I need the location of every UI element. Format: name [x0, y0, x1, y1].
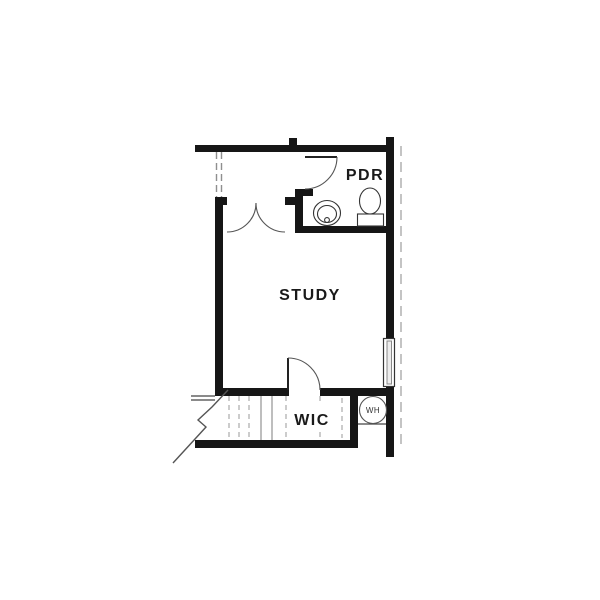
wic-room-label: WIC [294, 412, 330, 429]
toilet-icon [358, 188, 384, 226]
right-wall-upper [386, 137, 394, 338]
study-bottom-wall-right [320, 388, 394, 396]
study-door-right-jamb [285, 197, 297, 205]
wall-opening-dashed [217, 152, 222, 197]
pdr-room-label: PDR [346, 167, 384, 184]
floor-plan-canvas: WH STUDY PDR WIC [0, 0, 600, 600]
top-wall-stub [289, 138, 297, 145]
pdr-door-icon [305, 157, 337, 189]
bottom-wall [195, 440, 358, 448]
wh-label: WH [366, 406, 380, 415]
study-room-label: STUDY [279, 287, 341, 304]
pdr-left-wall [295, 189, 303, 233]
water-heater-icon: WH [358, 397, 387, 425]
wic-door-icon [288, 358, 320, 390]
window-icon [384, 339, 395, 387]
right-wall-lower [386, 387, 394, 457]
floor-plan-drawing: WH STUDY PDR WIC [0, 0, 600, 600]
double-door-icon [227, 203, 285, 232]
top-wall [195, 145, 394, 152]
stair-break-line-icon [173, 390, 228, 463]
pdr-bottom-wall [295, 226, 394, 233]
sink-icon [314, 201, 341, 226]
study-left-wall [215, 197, 223, 393]
